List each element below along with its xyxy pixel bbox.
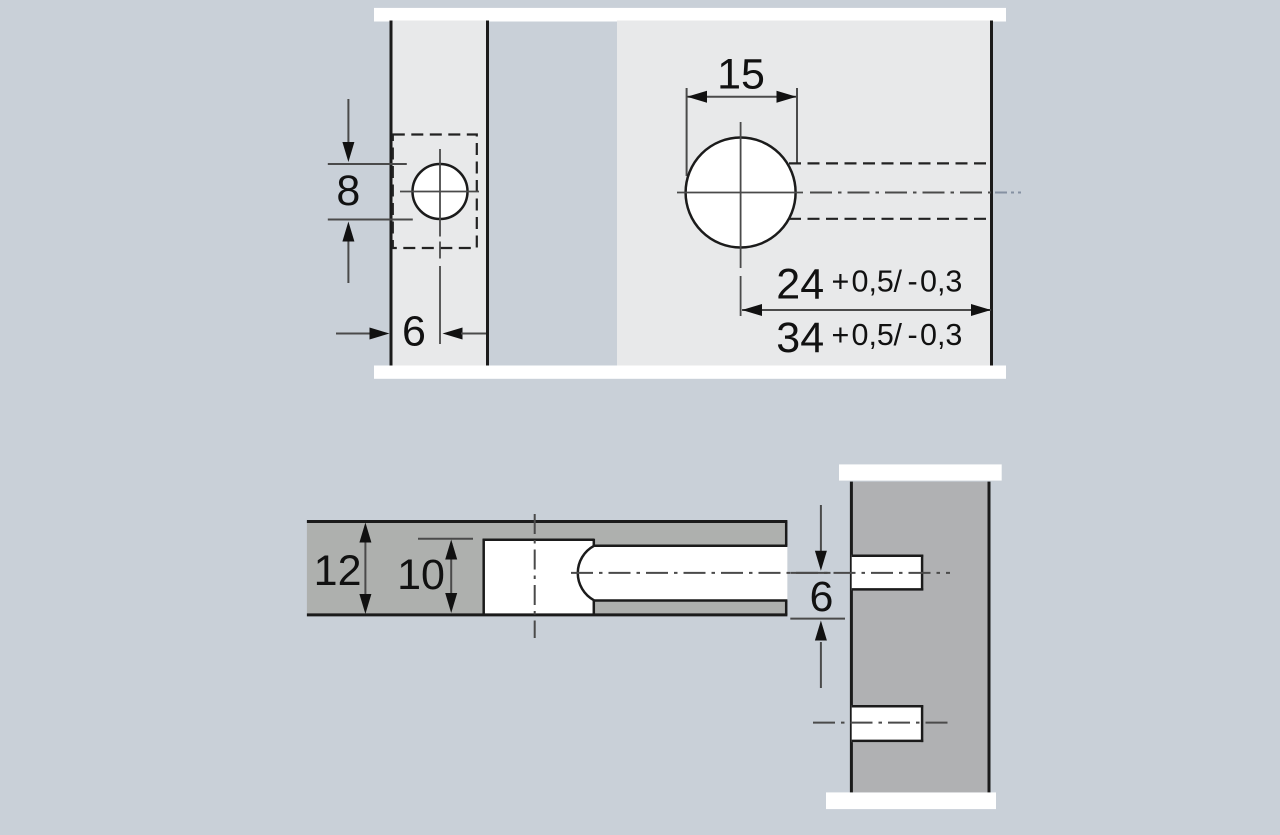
svg-text:6: 6 — [402, 308, 426, 356]
svg-text:10: 10 — [397, 551, 445, 599]
svg-text:34: 34 — [776, 314, 824, 362]
svg-text:6: 6 — [809, 573, 833, 621]
svg-text:15: 15 — [717, 51, 765, 99]
svg-text:+0,5/-0,3: +0,5/-0,3 — [832, 318, 963, 352]
svg-text:24: 24 — [776, 261, 824, 309]
svg-text:8: 8 — [336, 167, 360, 215]
svg-text:+0,5/-0,3: +0,5/-0,3 — [832, 265, 963, 299]
svg-text:12: 12 — [314, 547, 362, 595]
